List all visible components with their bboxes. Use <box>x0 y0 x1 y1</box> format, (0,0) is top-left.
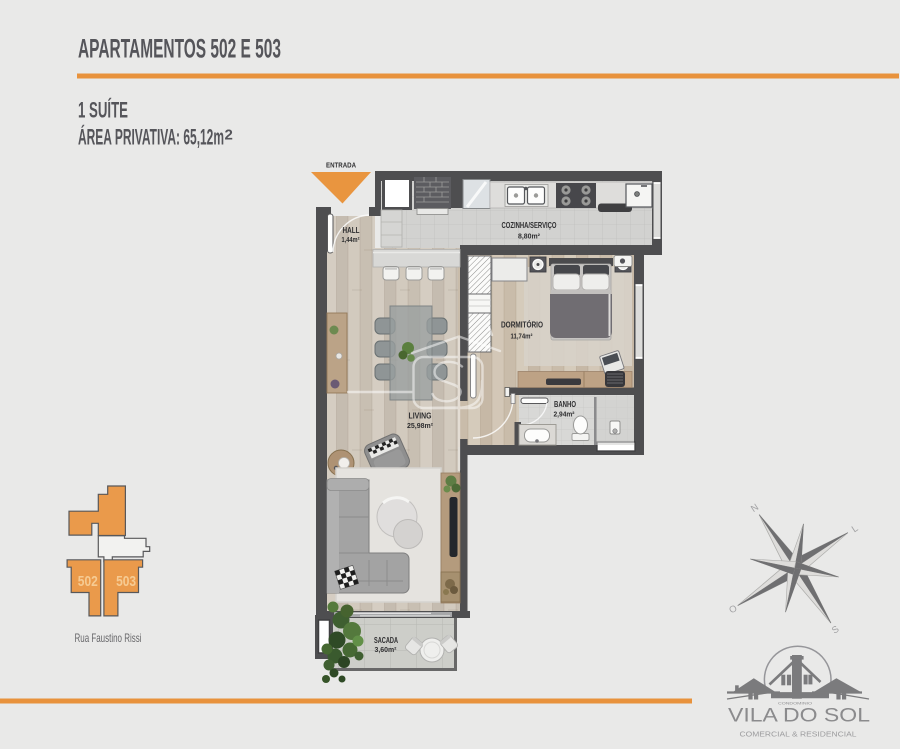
svg-text:11,74m²: 11,74m² <box>511 332 533 341</box>
svg-text:N: N <box>749 502 761 515</box>
svg-text:503: 503 <box>116 573 136 590</box>
svg-text:HALL: HALL <box>343 226 360 235</box>
svg-text:Rua Faustino Rissi: Rua Faustino Rissi <box>75 631 142 645</box>
svg-text:COMERCIAL & RESIDENCIAL: COMERCIAL & RESIDENCIAL <box>740 732 857 739</box>
svg-text:ENTRADA: ENTRADA <box>326 161 356 170</box>
svg-text:2: 2 <box>225 127 233 144</box>
svg-text:1,44m²: 1,44m² <box>342 235 360 244</box>
svg-text:S: S <box>830 624 841 637</box>
svg-text:VILA DO SOL: VILA DO SOL <box>728 705 870 727</box>
svg-text:L: L <box>850 523 860 535</box>
svg-text:APARTAMENTOS 502 E 503: APARTAMENTOS 502 E 503 <box>78 34 281 64</box>
svg-text:2,94m²: 2,94m² <box>554 410 575 419</box>
svg-text:1 SUÍTE: 1 SUÍTE <box>78 98 128 123</box>
svg-text:SACADA: SACADA <box>374 635 398 645</box>
svg-text:502: 502 <box>78 573 98 590</box>
svg-text:3,60m²: 3,60m² <box>375 645 397 654</box>
svg-text:25,98m²: 25,98m² <box>407 421 433 430</box>
svg-text:8,80m²: 8,80m² <box>518 232 540 241</box>
svg-text:DORMITÓRIO: DORMITÓRIO <box>501 319 543 330</box>
svg-text:LIVING: LIVING <box>409 411 432 421</box>
svg-text:BANHO: BANHO <box>554 399 576 409</box>
svg-text:ÁREA PRIVATIVA: 65,12m: ÁREA PRIVATIVA: 65,12m <box>78 125 224 150</box>
svg-text:COZINHA/SERVIÇO: COZINHA/SERVIÇO <box>502 220 557 230</box>
